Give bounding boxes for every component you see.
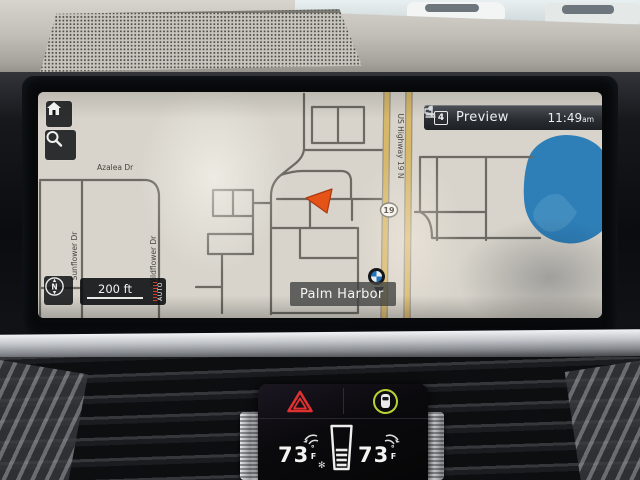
home-icon [46,101,62,116]
svg-text:19: 19 [383,206,395,215]
passenger-temperature[interactable]: 73 °F [358,445,396,466]
parking-assist-icon [373,389,398,414]
compass-button[interactable]: N [44,276,73,305]
nav-screen[interactable]: Azalea Dr Sunflower Dr Wildflower Dr US … [38,92,602,318]
auto-zoom-label: AUTO [158,282,164,301]
scale-value: 200 ft [98,284,132,296]
scale-rule [87,297,143,299]
svg-text:N: N [51,282,57,291]
blower-level-icon[interactable] [329,424,354,472]
source-label: Preview [456,110,540,125]
map-scale-control[interactable]: 200 ft AUTO [80,278,166,305]
search-icon [45,130,63,148]
hazard-button[interactable] [258,384,343,418]
compass-icon: N [44,276,65,297]
street-label-azalea: Azalea Dr [97,163,134,172]
infotainment-scene: Azalea Dr Sunflower Dr Wildflower Dr US … [0,0,640,480]
home-button[interactable] [46,101,72,127]
climate-panel: 73 °F ✻ 73 °F [258,384,428,480]
fan-icon: ✻ [318,461,326,471]
climate-display: 73 °F ✻ 73 °F [258,419,428,479]
parked-car [545,3,640,24]
dashboard-top [0,0,640,76]
street-label-sunflower: Sunflower Dr [70,231,79,281]
poi-label[interactable]: Palm Harbor [290,282,396,306]
parked-car [407,2,505,19]
temp-unit: °F [311,445,316,461]
search-button[interactable] [45,130,76,160]
windshield-view [295,0,640,26]
zoom-ticks [153,282,157,302]
street-label-highway: US Highway 19 N [396,114,405,179]
auto-zoom-slider[interactable]: AUTO [150,278,166,305]
status-bar: 4 Preview 11:49am [424,105,602,130]
driver-temperature[interactable]: 73 °F [278,445,316,466]
route-shield-19: 19 [381,203,398,217]
parking-assist-button[interactable] [344,384,429,418]
speaker-grille [40,8,362,72]
hazard-icon [287,390,313,413]
clock: 11:49am [548,111,595,125]
temp-unit: °F [391,445,396,461]
driver-profile-icon [424,105,437,118]
